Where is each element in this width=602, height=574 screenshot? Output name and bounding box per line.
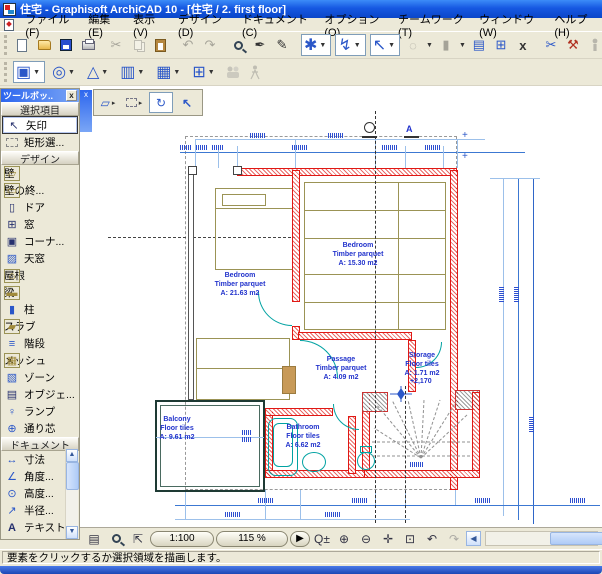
chevron-down-icon: ▼ [388, 42, 395, 49]
menu-bar: ファイル(F) 編集(E) 表示(V) デザイン(D) ドキュメント(C) オプ… [0, 18, 602, 32]
zone-icon: ▧ [4, 371, 20, 384]
dimension-text [570, 498, 586, 503]
dimension-text [196, 145, 208, 150]
cutaway-button[interactable]: ✂ [540, 34, 562, 56]
tool-mesh[interactable]: ▦メッシュ [1, 352, 79, 369]
corner-window-icon: ▣ [4, 235, 20, 248]
grid-icon: ⊞ [495, 37, 506, 53]
open-folder-icon [38, 40, 51, 50]
tool-marquee[interactable]: 矩形選... [1, 134, 79, 151]
wall[interactable] [362, 470, 480, 478]
tool-arrow[interactable]: ↖矢印 [2, 116, 78, 134]
palette-toolbar: ▣▼ ◎▼ △▼ ▥▼ ▦▼ ⊞▼ [0, 59, 602, 86]
toolbox-palette: ツールボッ.. x 選択項目 ↖矢印 矩形選... デザイン ▱壁 ▭壁の終..… [0, 88, 80, 540]
floor-plan-canvas[interactable]: x ▱▸ ▸ ↻ ↖ A + + [80, 86, 602, 527]
grid-pin-icon: ⊕ [4, 422, 20, 435]
dimension-text [258, 498, 274, 503]
witness-line [457, 139, 458, 168]
roof-icon: △ [87, 62, 99, 82]
pickup-syringe-icon: ✒ [255, 37, 266, 53]
magnifier-icon [234, 41, 243, 50]
favorites-combo[interactable]: ▣▼ [13, 61, 45, 83]
paste-button[interactable] [149, 34, 171, 56]
dimension-text [382, 145, 398, 150]
zoom-in-button[interactable]: ⊕ [334, 530, 354, 547]
pillow [222, 194, 266, 206]
person-view-button[interactable] [584, 34, 602, 56]
slab-icon: ▰ [4, 319, 20, 334]
tool-slab[interactable]: ▰スラブ [1, 318, 79, 335]
marquee-icon [126, 98, 137, 107]
toolbox-titlebar[interactable]: ツールボッ.. x [1, 89, 79, 102]
arrow-cursor-icon: ↖ [6, 119, 22, 132]
angle-dimension-icon: ∠ [4, 470, 20, 483]
docked-caption[interactable]: x [80, 90, 92, 132]
document-window-icon[interactable] [4, 19, 14, 31]
snap-guides-icon: ✱ [304, 35, 317, 55]
scale-button[interactable]: 1:100 [150, 531, 214, 547]
standard-toolbar: ✂ ↶ ↷ ✒ ✎ ✱▼ ↯▼ ↖▼ ◌ ▼ ▮ ▼ ▤ ⊞ x ✂ ⚒ ⌜ ⌒ [0, 32, 602, 59]
save-button[interactable] [55, 34, 77, 56]
3d-scissors-icon: ✂ [545, 37, 556, 53]
level-annotation[interactable]: +2,170 [410, 378, 432, 387]
chevron-down-icon: ▼ [101, 69, 108, 76]
tool-object[interactable]: ▤オブジェ... [1, 386, 79, 403]
wall[interactable] [265, 408, 333, 416]
chevron-down-icon: ▼ [319, 42, 326, 49]
witness-line [237, 146, 238, 168]
demolish-button[interactable]: ⚒ [562, 34, 584, 56]
furniture-line [197, 368, 289, 369]
chevron-down-icon: ▼ [354, 42, 361, 49]
inject-parameters-button[interactable]: ✎ [271, 34, 293, 56]
beam-icon: ▬ [4, 286, 20, 300]
magnifier-icon [112, 534, 121, 543]
witness-line [300, 490, 301, 519]
horizontal-scrollbar[interactable] [485, 531, 598, 546]
wall-icon: ▱ [4, 166, 20, 181]
tool-column[interactable]: ▮柱 [1, 301, 79, 318]
tatami-line [398, 183, 399, 329]
undo-button[interactable]: ↶ [177, 34, 199, 56]
toolbox-section-design: デザイン [1, 151, 79, 165]
chevron-down-icon: ▼ [459, 42, 466, 49]
dimension-text [514, 286, 519, 302]
dimension-chain[interactable] [518, 178, 519, 520]
roof-view-combo[interactable]: △▼ [84, 61, 113, 83]
skylight-icon: ▨ [4, 252, 20, 265]
canvas-bottom-bar: ▤ ⇱ 1:100 115 % ▶ Q± ⊕ ⊖ ✛ ⊡ ↶ ↷ ◀ [80, 527, 602, 549]
tool-roof[interactable]: ⌂屋根 [1, 267, 79, 284]
room-stamp-passage[interactable]: Passage Timber parquet A: 4.09 m2 [306, 356, 376, 382]
zoom-percent-button[interactable]: 115 % [216, 531, 288, 547]
archicad-app-icon [3, 3, 16, 16]
room-stamp-bathroom[interactable]: Bathroom Floor tiles A: 6.62 m2 [268, 424, 338, 450]
zoom-page-button[interactable] [106, 530, 126, 547]
trace-reference-button[interactable]: ▱▸ [97, 92, 121, 113]
dimension-chain[interactable] [533, 178, 534, 524]
orbit-button[interactable]: ↻ [149, 92, 173, 113]
dimension-text [410, 462, 424, 467]
tool-wall-end[interactable]: ▭壁の終... [1, 182, 79, 199]
toolbox-scrollbar[interactable]: ▲ ▼ [65, 449, 78, 539]
radius-dimension-icon: ↗ [4, 504, 20, 517]
toolbox-title: ツールボッ.. [3, 89, 64, 102]
zoom-stepper-button[interactable]: Q± [312, 530, 332, 547]
chevron-down-icon[interactable]: ▼ [426, 42, 433, 49]
column-icon: ▮ [442, 37, 449, 53]
cursor-snap-combo[interactable]: ↯▼ [335, 34, 365, 56]
fit-view-button[interactable]: ⇱ [128, 530, 148, 547]
room-stamp-storage[interactable]: Storage Floor tiles A: 1.71 m2 [392, 352, 452, 378]
dimension-text [328, 133, 344, 138]
dimension-chain[interactable] [195, 139, 485, 140]
section-icon: ▥ [120, 62, 135, 82]
schedule-combo[interactable]: ▦▼ [153, 61, 185, 83]
play-button[interactable]: ▶ [290, 531, 310, 547]
tool-corner-window[interactable]: ▣コーナ... [1, 233, 79, 250]
wall-end-icon: ▭ [4, 183, 20, 198]
column-marker[interactable] [188, 166, 197, 175]
dimension-text [250, 133, 266, 138]
tool-door[interactable]: ▯ドア [1, 199, 79, 216]
chevron-down-icon: ▼ [68, 69, 75, 76]
door-icon: ▯ [4, 201, 20, 214]
survey-point-cross: + [462, 130, 468, 141]
room-stamp-balcony[interactable]: Balcony Floor tiles A: 9.61 m2 [142, 416, 212, 442]
roof-icon: ⌂ [4, 269, 20, 283]
status-bar: 要素をクリックするか選択領域を描画します。 [0, 549, 602, 566]
dimension-text [242, 437, 252, 442]
witness-line [443, 146, 444, 168]
chevron-down-icon: ▼ [173, 69, 180, 76]
schedule-table-icon: ▦ [156, 62, 171, 82]
curtain-wall[interactable] [188, 170, 194, 400]
dimension-chain[interactable] [175, 505, 600, 506]
layout-icon: ⊞ [192, 62, 205, 82]
redo-arrow-icon: ↷ [205, 37, 216, 53]
witness-line [455, 490, 456, 505]
teamwork-group-button[interactable] [222, 61, 244, 83]
new-file-icon [17, 39, 27, 52]
text-icon: A [4, 522, 20, 534]
open-button[interactable] [33, 34, 55, 56]
copy-button[interactable] [127, 34, 149, 56]
dimension-text [499, 286, 504, 302]
scroll-down-icon[interactable]: ▼ [66, 526, 78, 539]
witness-line [490, 178, 540, 179]
dimension-text [352, 498, 368, 503]
x-icon: x [519, 38, 526, 53]
witness-line [185, 490, 186, 519]
bed-pillow-line [216, 208, 292, 209]
stair-icon: ≡ [4, 338, 20, 350]
tool-window[interactable]: ⊞窓 [1, 216, 79, 233]
dotted-circle-icon: ◌ [409, 38, 417, 53]
paste-clipboard-icon [155, 39, 166, 52]
chevron-down-icon: ▼ [33, 69, 40, 76]
section-line-vertical [375, 111, 376, 523]
scrollbar-thumb[interactable] [550, 532, 602, 545]
pan-button[interactable]: ✛ [378, 530, 398, 547]
zoom-out-button[interactable]: ⊖ [356, 530, 376, 547]
window-icon: ⊞ [4, 218, 20, 231]
layer-settings-button[interactable]: ▤ [468, 34, 490, 56]
undo-arrow-icon: ↶ [183, 37, 194, 53]
object-chair-icon: ▤ [4, 388, 20, 401]
printer-icon [82, 41, 95, 50]
marquee-icon [6, 138, 18, 147]
chevron-icon: ▸ [139, 99, 143, 107]
layout-combo[interactable]: ⊞▼ [189, 61, 219, 83]
dimension-text [529, 416, 534, 432]
chevron-icon: ▸ [112, 99, 116, 107]
new-button[interactable] [11, 34, 33, 56]
toolbox-close-button[interactable]: x [66, 90, 77, 101]
tool-stair[interactable]: ≡階段 [1, 335, 79, 352]
section-marker-tick [404, 136, 419, 138]
find-select-button[interactable] [227, 34, 249, 56]
section-line-vertical [405, 386, 406, 523]
cabinet[interactable] [282, 366, 296, 394]
room-stamp-bedroom-right[interactable]: Bedroom Timber parquet A: 15.30 m2 [323, 242, 393, 268]
dimension-text [225, 512, 241, 517]
washbasin[interactable] [302, 452, 326, 472]
room-stamp-bedroom-left[interactable]: Bedroom Timber parquet A: 21.63 m2 [205, 272, 275, 298]
chevron-down-icon: ▼ [137, 69, 144, 76]
status-message: 要素をクリックするか選択領域を描画します。 [2, 551, 600, 564]
quick-options-button[interactable]: ▤ [84, 530, 104, 547]
layers-icon: ▤ [473, 37, 485, 53]
witness-line [265, 490, 266, 519]
tool-zone[interactable]: ▧ゾーン [1, 369, 79, 386]
snap-guides-combo[interactable]: ✱▼ [301, 34, 331, 56]
dimension-text [180, 145, 192, 150]
dimension-chain[interactable] [180, 152, 525, 153]
cursor-snap-icon: ↯ [338, 35, 351, 55]
scissors-icon: ✂ [111, 37, 122, 53]
column-options-button[interactable]: ▮ [435, 34, 457, 56]
wall[interactable] [298, 332, 412, 340]
dimension-text [475, 498, 491, 503]
tool-lamp[interactable]: ♀ランプ [1, 403, 79, 420]
dimension-icon: ↔ [4, 454, 20, 466]
north-arrow [390, 386, 412, 402]
marquee-mode-button[interactable]: ▸ [123, 92, 147, 113]
wall[interactable] [237, 168, 457, 176]
section-circle-marker[interactable] [364, 122, 375, 133]
dimension-chain[interactable] [503, 178, 504, 516]
cut-button[interactable]: ✂ [105, 34, 127, 56]
dimension-text [212, 145, 224, 150]
person-icon [590, 38, 600, 52]
survey-point-cross: + [462, 151, 468, 162]
section-marker-a[interactable]: A [406, 124, 413, 135]
copy-icon [134, 40, 142, 50]
save-floppy-icon [60, 39, 72, 51]
scroll-left-icon[interactable]: ◀ [466, 531, 481, 546]
grid-view-button[interactable]: ⊞ [490, 34, 512, 56]
settings-dialog-icon: ◎ [52, 62, 66, 82]
column-marker[interactable] [233, 166, 242, 175]
window-bottom-border [0, 566, 602, 574]
people-group-icon [225, 65, 241, 79]
next-zoom-button[interactable]: ↷ [444, 530, 464, 547]
inject-syringe-icon: ✎ [277, 37, 288, 53]
bed-furniture[interactable] [196, 338, 290, 400]
favorites-icon: ▣ [16, 62, 31, 82]
column-icon: ▮ [4, 303, 20, 316]
dimension-text [242, 430, 252, 435]
canvas-mini-toolbar: ▱▸ ▸ ↻ ↖ [93, 89, 203, 116]
scrollbar-thumb[interactable] [66, 462, 79, 490]
dimension-text [292, 145, 308, 150]
dimension-text [425, 145, 441, 150]
scroll-up-icon[interactable]: ▲ [66, 449, 78, 462]
measure-combo[interactable]: ↖▼ [370, 34, 400, 56]
lamp-icon: ♀ [4, 406, 20, 418]
dimension-text [325, 512, 341, 517]
walking-person-icon [250, 65, 260, 80]
arrow-pointer-button[interactable]: ↖ [175, 92, 199, 113]
tool-beam[interactable]: ▬梁 [1, 284, 79, 301]
previous-zoom-button[interactable]: ↶ [422, 530, 442, 547]
axe-icon: ⚒ [567, 37, 579, 53]
walk-person-button[interactable] [244, 61, 266, 83]
toolbar-grip[interactable] [4, 62, 7, 82]
redo-button[interactable]: ↷ [199, 34, 221, 56]
chevron-down-icon: ▼ [208, 69, 215, 76]
section-combo[interactable]: ▥▼ [117, 61, 149, 83]
wall[interactable] [292, 170, 300, 302]
detach-button[interactable]: x [512, 34, 534, 56]
dotted-circle-button[interactable]: ◌ [402, 34, 424, 56]
tool-grid-line[interactable]: ⊕通り芯 [1, 420, 79, 437]
arrow-ruler-icon: ↖ [373, 35, 386, 55]
level-dimension-icon: ⊙ [4, 487, 20, 500]
print-button[interactable] [77, 34, 99, 56]
wall[interactable] [472, 392, 480, 478]
tool-skylight[interactable]: ▨天窓 [1, 250, 79, 267]
settings-combo[interactable]: ◎▼ [49, 61, 80, 83]
tool-wall[interactable]: ▱壁 [1, 165, 79, 182]
winder-stair[interactable] [370, 398, 472, 470]
pickup-parameters-button[interactable]: ✒ [249, 34, 271, 56]
toolbar-grip[interactable] [4, 35, 7, 55]
witness-line [195, 139, 196, 168]
fit-in-window-button[interactable]: ⊡ [400, 530, 420, 547]
witness-line [405, 146, 406, 168]
toolbox-section-selection: 選択項目 [1, 102, 79, 116]
witness-line [295, 139, 296, 168]
mesh-icon: ▦ [4, 353, 20, 368]
